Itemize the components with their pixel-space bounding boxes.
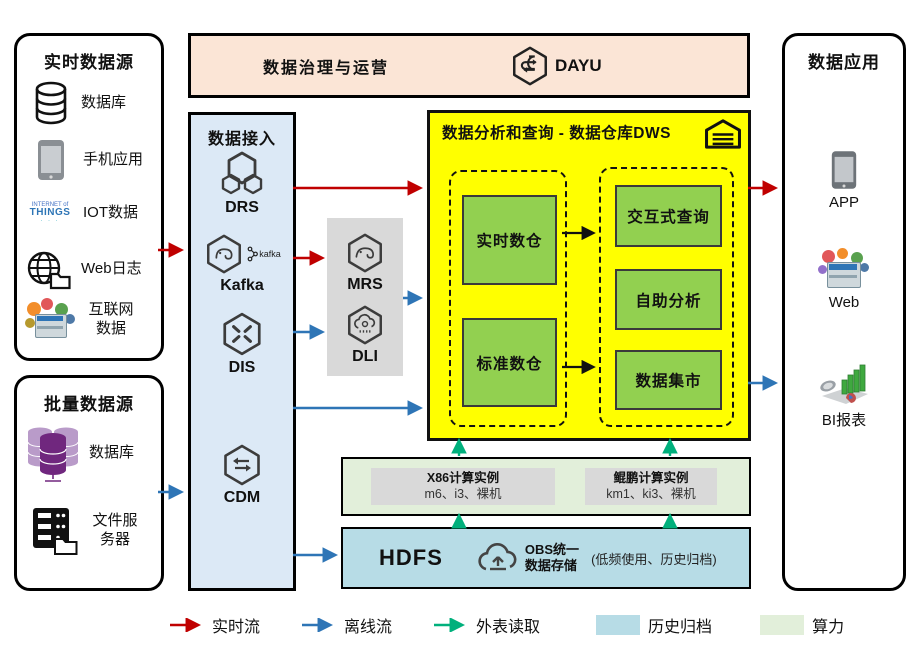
kafka-logo-text: kafka (259, 249, 281, 259)
bi-label: BI报表 (822, 412, 866, 431)
dli-label: DLI (352, 348, 378, 366)
obs-line1: OBS统一 (525, 542, 579, 558)
realtime-sources-title: 实时数据源 (17, 48, 161, 73)
offline-flow-arrow-icon (300, 618, 336, 632)
dis-icon (219, 311, 265, 357)
kunpeng-spec: km1、ki3、裸机 (606, 487, 696, 503)
kunpeng-compute-chip: 鲲鹏计算实例 km1、ki3、裸机 (585, 468, 717, 505)
source-label: 互联网数据 (85, 301, 137, 339)
bi-icon (816, 358, 872, 410)
standard-dw-box: 标准数仓 (462, 318, 557, 407)
source-label: 数据库 (89, 444, 134, 463)
dis-label: DIS (229, 359, 256, 377)
x86-spec: m6、i3、裸机 (424, 487, 501, 503)
legend-realtime: 实时流 (212, 613, 260, 637)
dws-warehouse-box: 数据分析和查询 - 数据仓库DWS 实时数仓 标准数仓 交互式查询 自助分析 数… (427, 110, 751, 441)
dayu-label: DAYU (555, 56, 602, 76)
legend: 实时流 离线流 外表读取 历史归档 算力 (168, 613, 844, 637)
app-label: APP (829, 194, 859, 213)
data-apps-title: 数据应用 (785, 48, 903, 73)
iot-icon-text: · · · (40, 218, 59, 224)
iot-icon: INTERNET of THINGS · · · (25, 194, 75, 232)
data-apps-box: 数据应用 APP Web (782, 33, 906, 591)
architecture-diagram: 实时数据源 数据库 手机应用 INTERNET of THINGS · · · (0, 0, 914, 651)
kafka-label: Kafka (220, 277, 264, 295)
dws-title: 数据分析和查询 - 数据仓库DWS (442, 121, 671, 143)
weblog-icon (25, 248, 73, 290)
cdm-icon (220, 443, 264, 487)
database-purple-icon (25, 422, 81, 484)
governance-banner: 数据治理与运营 DAYU (188, 33, 750, 98)
data-ingest-column: 数据接入 DRS (188, 112, 296, 591)
source-label: IOT数据 (83, 204, 138, 223)
kunpeng-title: 鲲鹏计算实例 (613, 471, 688, 487)
dayu-icon (509, 44, 551, 88)
mrs-label: MRS (347, 276, 383, 294)
batch-sources-title: 批量数据源 (17, 390, 161, 415)
mrs-icon (344, 232, 386, 274)
compute-swatch (760, 615, 804, 635)
interactive-query-box: 交互式查询 (615, 185, 722, 247)
hdfs-label: HDFS (379, 545, 443, 571)
history-archive-swatch (596, 615, 640, 635)
external-read-arrow-icon (432, 618, 468, 632)
drs-label: DRS (225, 199, 259, 217)
kafka-icon (203, 233, 245, 275)
legend-external: 外表读取 (476, 613, 540, 637)
source-label: 手机应用 (83, 151, 143, 170)
drs-icon (218, 151, 266, 197)
realtime-dw-box: 实时数仓 (462, 195, 557, 285)
phone-icon (35, 138, 67, 182)
ingest-title: 数据接入 (191, 125, 293, 149)
dli-icon (344, 304, 386, 346)
warehouse-icon (704, 118, 742, 150)
source-label: Web日志 (81, 260, 142, 279)
realtime-sources-box: 实时数据源 数据库 手机应用 INTERNET of THINGS · · · (14, 33, 164, 361)
batch-sources-box: 批量数据源 数据库 (14, 375, 164, 591)
storage-note: (低频使用、历史归档) (591, 549, 717, 568)
file-server-icon (31, 506, 79, 556)
x86-compute-chip: X86计算实例 m6、i3、裸机 (371, 468, 555, 505)
self-analysis-box: 自助分析 (615, 269, 722, 330)
storage-bar: HDFS OBS统一 数据存储 (低频使用、历史归档) (341, 527, 751, 589)
internet-data-icon (25, 298, 77, 342)
app-icon (829, 148, 859, 192)
legend-compute: 算力 (812, 613, 844, 637)
obs-line2: 数据存储 (525, 558, 579, 574)
compute-instances-bar: X86计算实例 m6、i3、裸机 鲲鹏计算实例 km1、ki3、裸机 (341, 457, 751, 516)
processing-panel: MRS DLI (327, 218, 403, 376)
cdm-label: CDM (224, 489, 260, 507)
governance-title: 数据治理与运营 (263, 54, 389, 78)
realtime-flow-arrow-icon (168, 618, 204, 632)
web-icon (818, 248, 870, 292)
kafka-logo-icon (247, 246, 258, 262)
source-label: 文件服务器 (87, 512, 143, 550)
source-label: 数据库 (81, 94, 126, 113)
iot-icon-text: THINGS (30, 208, 71, 218)
x86-title: X86计算实例 (427, 471, 499, 487)
data-mart-box: 数据集市 (615, 350, 722, 410)
legend-offline: 离线流 (344, 613, 392, 637)
legend-archive: 历史归档 (648, 613, 712, 637)
web-label: Web (829, 294, 860, 313)
database-icon (29, 80, 73, 126)
obs-cloud-icon (475, 540, 521, 576)
